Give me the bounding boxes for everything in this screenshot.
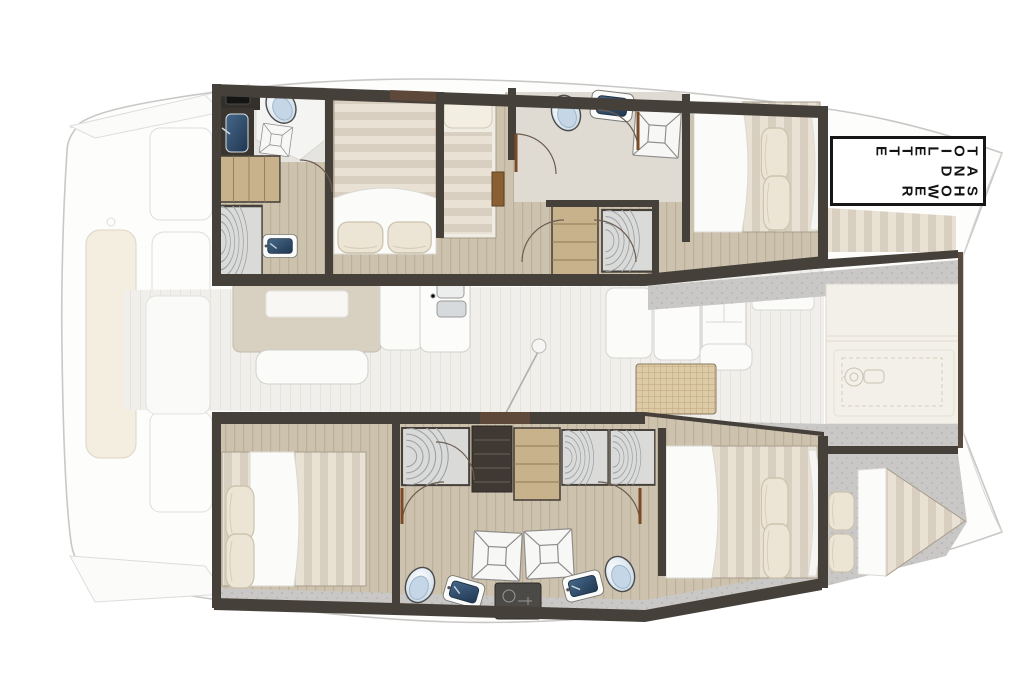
aft-cabin (334, 94, 436, 254)
sink-basin-2 (437, 301, 466, 317)
pillow-icon (226, 534, 254, 588)
forward-cabin (666, 446, 821, 578)
faucet-icon (431, 294, 435, 298)
hanging-locker-icon (562, 418, 608, 496)
label-letter: T (963, 145, 981, 158)
forepeak-wall (826, 446, 958, 454)
cockpit-module (146, 296, 210, 414)
pillow-icon (226, 486, 254, 540)
woven-table (636, 364, 716, 414)
label-box: ETTELIOTDNAREWOHS (830, 136, 986, 206)
single-bed-mattress (444, 132, 492, 234)
shower-tray-icon (524, 529, 574, 579)
bed-duvet (250, 452, 299, 586)
table-tray (266, 291, 348, 317)
nav-sink (263, 235, 297, 258)
foredeck-panels (826, 284, 962, 424)
shower-tray-icon (633, 110, 682, 159)
bed-duvet (666, 446, 718, 578)
port-hull (212, 84, 828, 294)
hanging-locker-icon (602, 197, 656, 285)
pillow-icon (761, 128, 788, 182)
pillow-icon (763, 524, 790, 578)
label-line: REWOHS (833, 181, 983, 201)
cockpit-bench (256, 350, 368, 384)
stairs-icon (514, 428, 560, 500)
aft-cabin (222, 452, 366, 588)
floor-plan-drawing (0, 0, 1024, 683)
stairs-icon (552, 206, 598, 278)
label-letter: S (963, 185, 981, 198)
label-letter: A (963, 165, 981, 178)
mast-step (532, 339, 546, 353)
galley-block (380, 276, 422, 350)
label-line: DNA (833, 161, 983, 181)
pillow-icon (388, 222, 431, 253)
pillow-icon (829, 534, 854, 572)
shower-tray-icon (472, 531, 522, 581)
wood-door (492, 172, 504, 206)
sofa-1 (606, 288, 652, 358)
single-berth-cabin (440, 96, 504, 238)
hanging-locker-icon (610, 418, 655, 496)
forepeak-cabin (826, 446, 967, 586)
pillow-icon (829, 492, 854, 530)
hanging-locker-icon (402, 416, 469, 498)
forepeak-duvet (858, 468, 886, 576)
shower-tray-icon (259, 123, 293, 157)
bed-duvet (694, 102, 748, 232)
stairs-icon (218, 156, 280, 202)
forward-cabin (694, 102, 823, 232)
floor-plan-page: ETTELIOTDNAREWOHS (0, 0, 1024, 683)
pillow-icon (763, 176, 790, 230)
label-line: ETTELIOT (833, 141, 983, 161)
pillow-icon (338, 222, 383, 253)
bow-deck-edge (958, 252, 963, 448)
